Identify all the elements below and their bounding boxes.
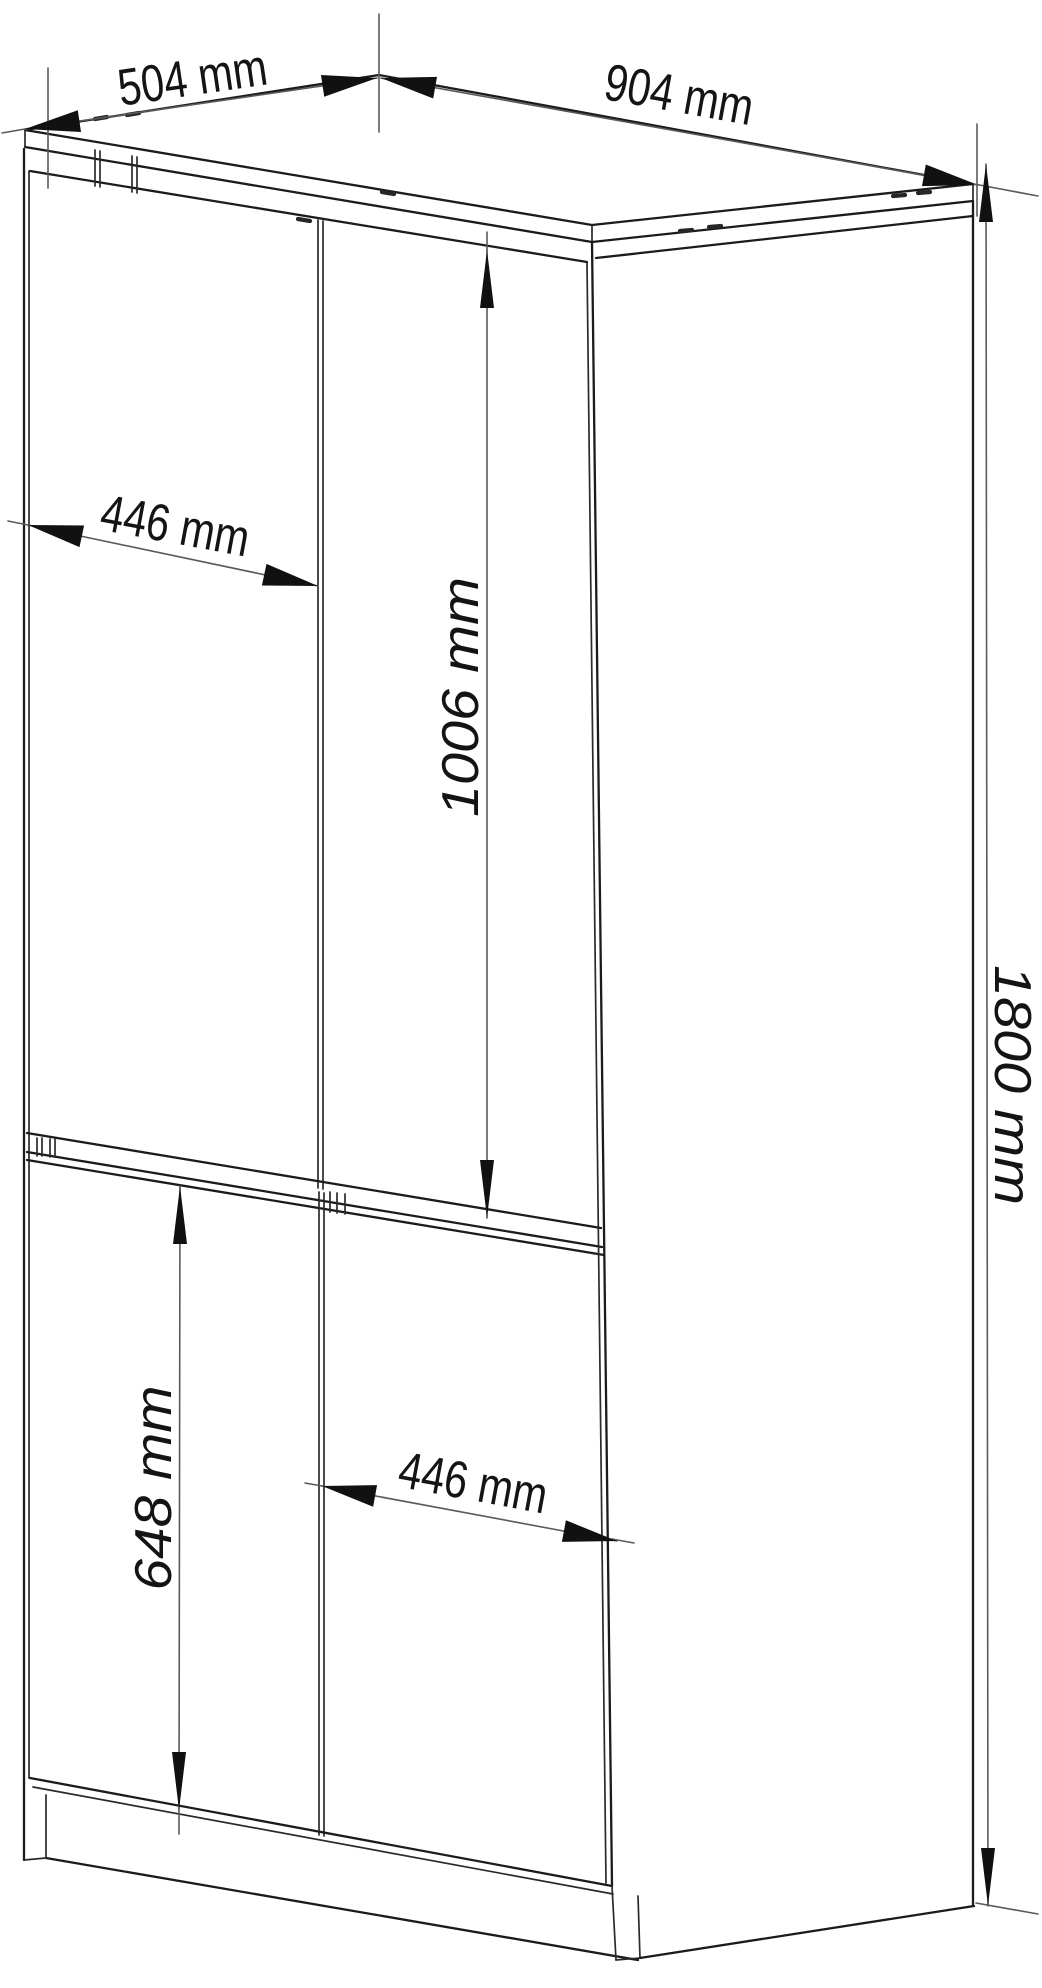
technical-drawing-page: 504 mm 904 mm 446 mm 1006 mm (0, 0, 1042, 1988)
lower-door-height-arrow-bottom (172, 1752, 186, 1810)
divider-upper-door-bottom (27, 1133, 601, 1228)
dimension-label-lower-door-width: 446 mm (394, 1441, 552, 1525)
side-panel-bottom-edge (640, 1906, 974, 1958)
lower-door-height-arrow-top (173, 1186, 187, 1244)
upper-door-width-arrow-left (28, 525, 84, 547)
dimension-width: 904 mm (379, 14, 978, 216)
dimension-lower-door-height: 648 mm (125, 1186, 187, 1834)
width-arrow-right (922, 165, 978, 187)
lower-door-width-arrow-left (322, 1485, 377, 1507)
overall-height-arrow-top (979, 164, 993, 222)
depth-overshoot (2, 129, 25, 133)
top-panel-front-bottom-edge (25, 147, 592, 242)
door-top-edge (30, 171, 587, 262)
left-foot-bottom (24, 1858, 46, 1860)
dimension-depth: 504 mm (2, 39, 377, 188)
depth-arrow-right (321, 75, 377, 97)
upper-door-height-arrow-top (480, 250, 494, 308)
dimension-label-overall-height: 1800 mm (983, 965, 1041, 1205)
width-arrow-left (381, 77, 437, 99)
front-right-outer-edge (592, 242, 612, 1886)
dowel-marks (95, 113, 930, 231)
dimension-upper-door-width: 446 mm (8, 484, 318, 586)
upper-door-width-arrow-right (262, 564, 318, 586)
dimension-label-upper-door-height: 1006 mm (432, 577, 490, 817)
dimension-label-depth: 504 mm (114, 39, 271, 118)
right-foot-back-edge (638, 1896, 640, 1958)
overall-height-extension-bottom (976, 1903, 1038, 1914)
plinth-top-edge (33, 1787, 613, 1894)
dimension-upper-door-height: 1006 mm (432, 232, 494, 1218)
dimension-overall-height: 1800 mm (974, 164, 1041, 1914)
right-foot-front-edge (612, 1886, 616, 1960)
depth-arrow-left (25, 110, 81, 132)
dimension-lower-door-width: 446 mm (305, 1441, 634, 1543)
cabinet-outline (24, 75, 974, 1960)
divider-shelf-front-top (27, 1152, 602, 1247)
overall-height-arrow-bottom (981, 1848, 995, 1906)
wardrobe-dimension-diagram: 504 mm 904 mm 446 mm 1006 mm (0, 0, 1042, 1988)
dimension-label-lower-door-height: 648 mm (125, 1386, 183, 1591)
dimension-label-width: 904 mm (600, 53, 758, 137)
divider-lower-door-top (27, 1160, 604, 1255)
